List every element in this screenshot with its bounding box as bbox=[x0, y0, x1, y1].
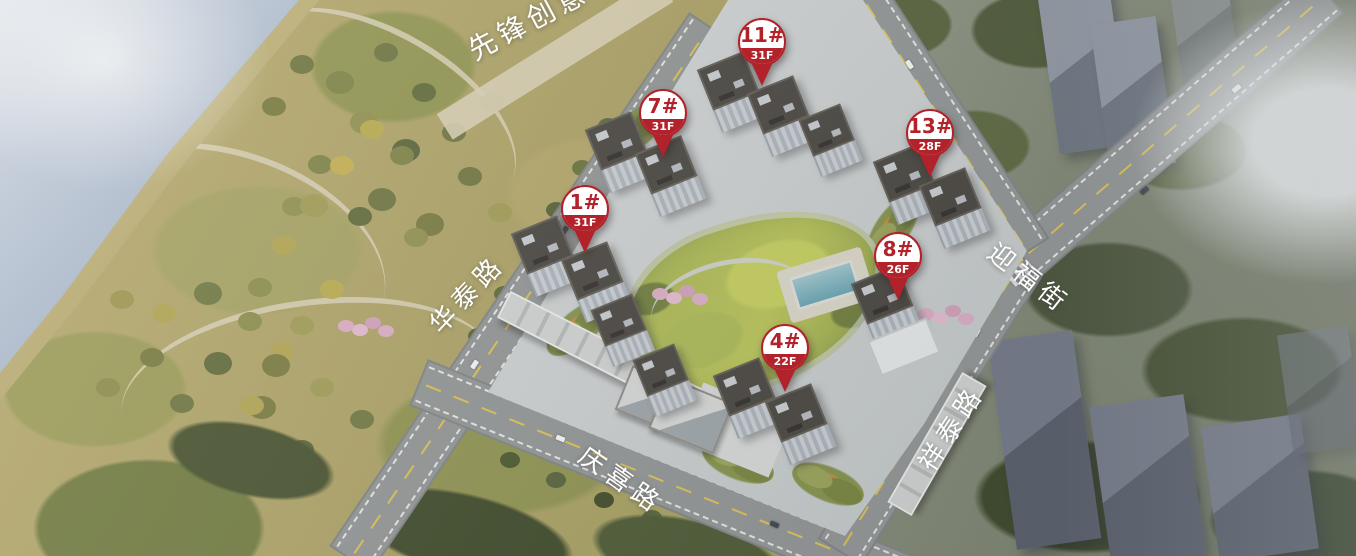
building-number: 4# bbox=[763, 326, 807, 354]
building-floors: 31F bbox=[740, 48, 784, 64]
map-pin-building-8[interactable]: 8# 26F bbox=[872, 232, 924, 302]
building-floors: 31F bbox=[641, 119, 685, 135]
blossom-trees bbox=[652, 288, 668, 300]
building-floors: 31F bbox=[563, 215, 607, 231]
tree-cluster bbox=[110, 290, 134, 309]
building-number: 13# bbox=[908, 111, 952, 139]
map-pin-building-13[interactable]: 13# 28F bbox=[904, 109, 956, 179]
building-number: 11# bbox=[740, 20, 784, 48]
blossom-trees bbox=[338, 320, 354, 332]
building-floors: 22F bbox=[763, 354, 807, 370]
building-number: 8# bbox=[876, 234, 920, 262]
map-pin-building-1[interactable]: 1# 31F bbox=[559, 185, 611, 255]
pin-head: 1# 31F bbox=[561, 185, 609, 233]
building-number: 1# bbox=[563, 187, 607, 215]
building-number: 7# bbox=[641, 91, 685, 119]
tree-cluster bbox=[290, 55, 314, 74]
pin-head: 8# 26F bbox=[874, 232, 922, 280]
building-floors: 26F bbox=[876, 262, 920, 278]
tree-cluster bbox=[360, 120, 384, 139]
pin-head: 4# 22F bbox=[761, 324, 809, 372]
pin-head: 13# 28F bbox=[906, 109, 954, 157]
pin-head: 11# 31F bbox=[738, 18, 786, 66]
building-floors: 28F bbox=[908, 139, 952, 155]
map-pin-building-11[interactable]: 11# 31F bbox=[736, 18, 788, 88]
site-plan-canvas: 先锋创意 华泰路 庆喜路 祥泰路 迎福街 1# 31F 4# 22F 7# 31… bbox=[0, 0, 1356, 556]
pin-head: 7# 31F bbox=[639, 89, 687, 137]
map-pin-building-7[interactable]: 7# 31F bbox=[637, 89, 689, 159]
map-pin-building-4[interactable]: 4# 22F bbox=[759, 324, 811, 394]
